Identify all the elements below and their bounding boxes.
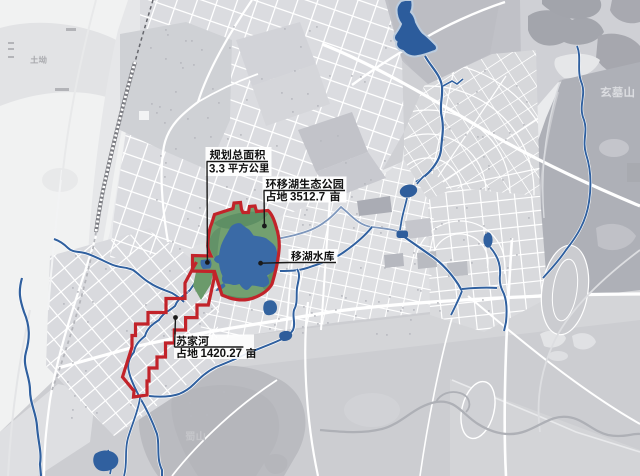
svg-text:3512.7: 3512.7 [290, 192, 325, 204]
svg-text:3.3: 3.3 [209, 163, 225, 175]
svg-text:1420.27: 1420.27 [201, 348, 243, 360]
